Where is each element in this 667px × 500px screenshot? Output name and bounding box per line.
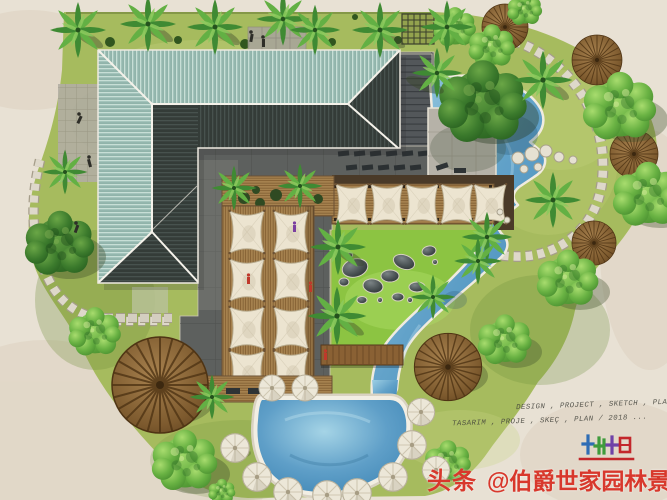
shade-sail — [335, 183, 370, 225]
palm-tree — [514, 51, 573, 110]
shade-sail — [229, 306, 266, 351]
pool-parasol — [398, 431, 427, 460]
garden-pad — [132, 287, 168, 313]
palm-tree — [212, 166, 257, 211]
watermark: 头条 @伯爵世家园林景观设计 — [427, 461, 667, 496]
person-figure — [309, 281, 312, 292]
palm-tree — [50, 2, 106, 58]
palm-tree — [290, 5, 340, 55]
palm-tree — [43, 150, 88, 195]
watermark-source-label: 头条 — [427, 461, 477, 496]
palm-tree — [454, 237, 502, 285]
thatch-umbrella — [112, 337, 208, 433]
watermark-account: @伯爵世家园林景观设计 — [487, 462, 667, 496]
shade-sail — [440, 183, 475, 225]
pool-parasol — [221, 434, 250, 463]
pool-parasol — [243, 463, 272, 492]
landscape-plan-rendering: DESIGN , PROJECT , SKETCH , PLAN ... TAS… — [0, 0, 667, 500]
person-figure — [293, 221, 296, 232]
palm-tree — [190, 375, 235, 420]
pool-parasol — [292, 375, 318, 401]
pool-parasol — [259, 375, 285, 401]
shade-sail — [405, 183, 440, 225]
palm-tree — [352, 2, 408, 58]
shade-sail — [229, 210, 266, 255]
palm-tree — [308, 287, 367, 346]
palm-tree — [278, 164, 323, 209]
palm-tree — [310, 219, 366, 275]
palm-tree — [420, 0, 473, 53]
palm-tree — [412, 48, 462, 98]
pool-parasol — [379, 463, 408, 492]
palm-tree — [525, 172, 581, 228]
pool-parasol — [407, 398, 434, 425]
wooden-bridge — [321, 345, 403, 368]
shade-sail-row — [335, 183, 508, 225]
shade-sail — [273, 258, 310, 303]
thatch-umbrella — [414, 333, 481, 400]
site-plan-canvas — [0, 0, 667, 500]
shade-sail — [473, 183, 508, 225]
palm-tree — [411, 275, 456, 320]
shade-sail — [370, 183, 405, 225]
shade-sail — [273, 306, 310, 351]
person-figure — [247, 273, 250, 284]
person-figure — [324, 349, 327, 360]
shade-sail — [273, 210, 310, 255]
pool-parasol — [274, 478, 303, 500]
